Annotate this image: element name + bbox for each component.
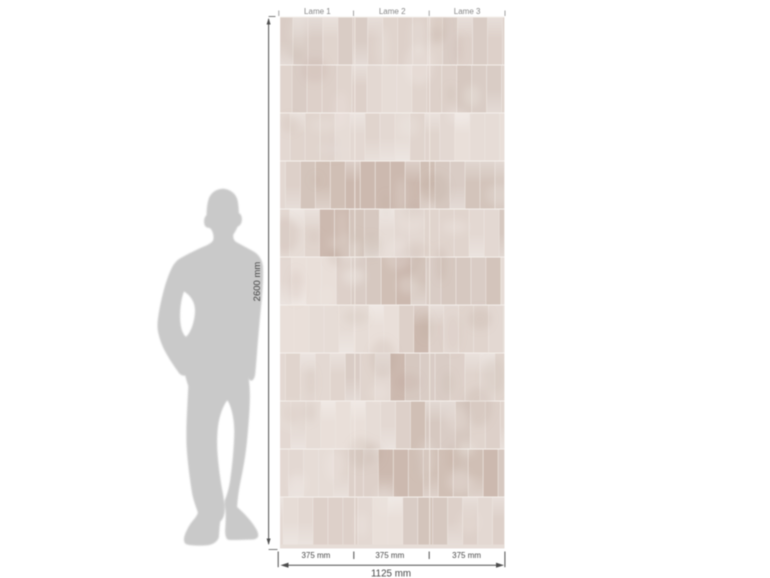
- svg-text:Lame 2: Lame 2: [379, 7, 406, 16]
- svg-text:375 mm: 375 mm: [301, 551, 330, 560]
- svg-text:375 mm: 375 mm: [452, 551, 481, 560]
- svg-text:Lame 3: Lame 3: [454, 7, 481, 16]
- svg-text:1125 mm: 1125 mm: [371, 569, 411, 578]
- svg-text:2600 mm: 2600 mm: [252, 262, 263, 302]
- svg-text:375 mm: 375 mm: [375, 551, 404, 560]
- svg-text:Lame 1: Lame 1: [304, 7, 331, 16]
